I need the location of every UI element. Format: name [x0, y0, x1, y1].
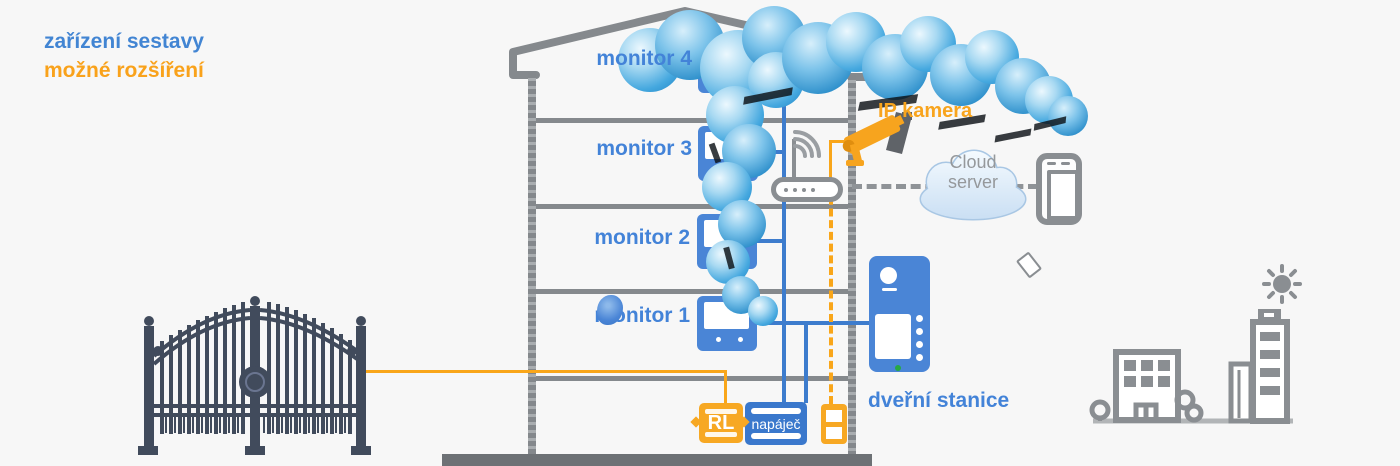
door-station-device — [869, 256, 930, 372]
cloud-puff — [930, 44, 992, 106]
router-led — [811, 188, 815, 192]
router-led — [802, 188, 806, 192]
monitor-2-label: monitor 2 — [560, 226, 690, 250]
phone-speaker — [1047, 162, 1056, 165]
electric-lock-icon — [821, 404, 847, 444]
router-led — [784, 188, 788, 192]
monitor-key-dot — [716, 255, 721, 260]
monitor-1-label: monitor 1 — [560, 304, 690, 328]
smartphone-icon — [1036, 153, 1082, 225]
city-icon — [1088, 260, 1300, 428]
cloud-puff — [965, 30, 1019, 84]
floor-line — [536, 289, 848, 294]
ground-bar — [442, 454, 872, 466]
door-station-status-led — [895, 365, 901, 371]
cloud-server-label: Cloud server — [920, 152, 1026, 192]
monitor-4-label: monitor 4 — [562, 47, 692, 71]
power-drop-wire — [804, 321, 808, 403]
door-station-button — [916, 354, 923, 361]
monitor-3-wire — [757, 150, 784, 154]
relay-box: RL — [699, 403, 743, 443]
monitor-screen — [704, 302, 749, 329]
router-led — [793, 188, 797, 192]
diagram-canvas: zařízení sestavy možné rozšíření — [0, 0, 1400, 466]
cloud-puff — [1048, 96, 1088, 136]
relay-drop-wire — [724, 370, 727, 403]
wifi-router-icon — [771, 177, 843, 202]
gate-wire — [356, 370, 727, 373]
cloud-glitch — [995, 129, 1032, 143]
monitor-4-device — [698, 38, 758, 93]
cloud-puff — [900, 16, 956, 72]
floor-line — [536, 204, 848, 209]
door-station-label: dveřní stanice — [868, 389, 1009, 413]
psu-vent-slot — [751, 433, 801, 439]
door-station-speaker — [882, 288, 897, 291]
cloud-glitch — [1034, 116, 1066, 131]
legend-system-label: zařízení sestavy — [44, 30, 204, 54]
relay-vent-slot — [705, 432, 737, 437]
phone-camera — [1061, 162, 1070, 165]
monitor-1-device — [697, 296, 757, 351]
monitor-2-wire — [756, 239, 784, 243]
left-wall — [528, 73, 536, 455]
monitor-key-dot — [716, 337, 721, 342]
monitor-3-label: monitor 3 — [562, 137, 692, 161]
mini-phone-icon — [1016, 251, 1042, 278]
monitor-key-dot — [738, 255, 743, 260]
door-station-button — [916, 341, 923, 348]
monitor-key-dot — [717, 79, 722, 84]
cloud-puff — [995, 58, 1051, 114]
relay-vent-slot — [705, 409, 737, 414]
monitor-key-dot — [738, 337, 743, 342]
psu-vent-slot — [751, 408, 801, 414]
monitor-key-dot — [739, 167, 744, 172]
monitor-screen — [705, 132, 750, 159]
monitor-4-wire — [757, 71, 784, 75]
legend-expansion-label: možné rozšíření — [44, 59, 204, 83]
power-supply-label: napáječ — [751, 416, 800, 432]
cloud-puff — [1025, 76, 1073, 124]
door-station-camera — [880, 267, 897, 284]
power-supply-box: napáječ — [745, 402, 807, 445]
floor-line — [536, 376, 848, 381]
lock-window — [826, 427, 842, 439]
door-station-button — [916, 328, 923, 335]
monitor-screen — [704, 220, 749, 247]
door-station-nameplate — [875, 314, 911, 359]
camera-drop-wire-dashed — [829, 185, 833, 404]
lock-window — [826, 410, 842, 422]
wifi-signal-icon — [789, 114, 837, 162]
monitor-key-dot — [739, 79, 744, 84]
monitor-2-device — [697, 214, 757, 269]
ip-camera-label: IP kamera — [878, 100, 972, 123]
monitor-screen — [705, 44, 750, 71]
door-station-wire — [756, 321, 869, 325]
door-station-button — [916, 315, 923, 322]
phone-screen — [1047, 170, 1079, 220]
gate-icon — [138, 294, 372, 458]
bus-wire-vertical — [782, 73, 786, 403]
monitor-key-dot — [717, 167, 722, 172]
monitor-3-device — [698, 126, 758, 181]
